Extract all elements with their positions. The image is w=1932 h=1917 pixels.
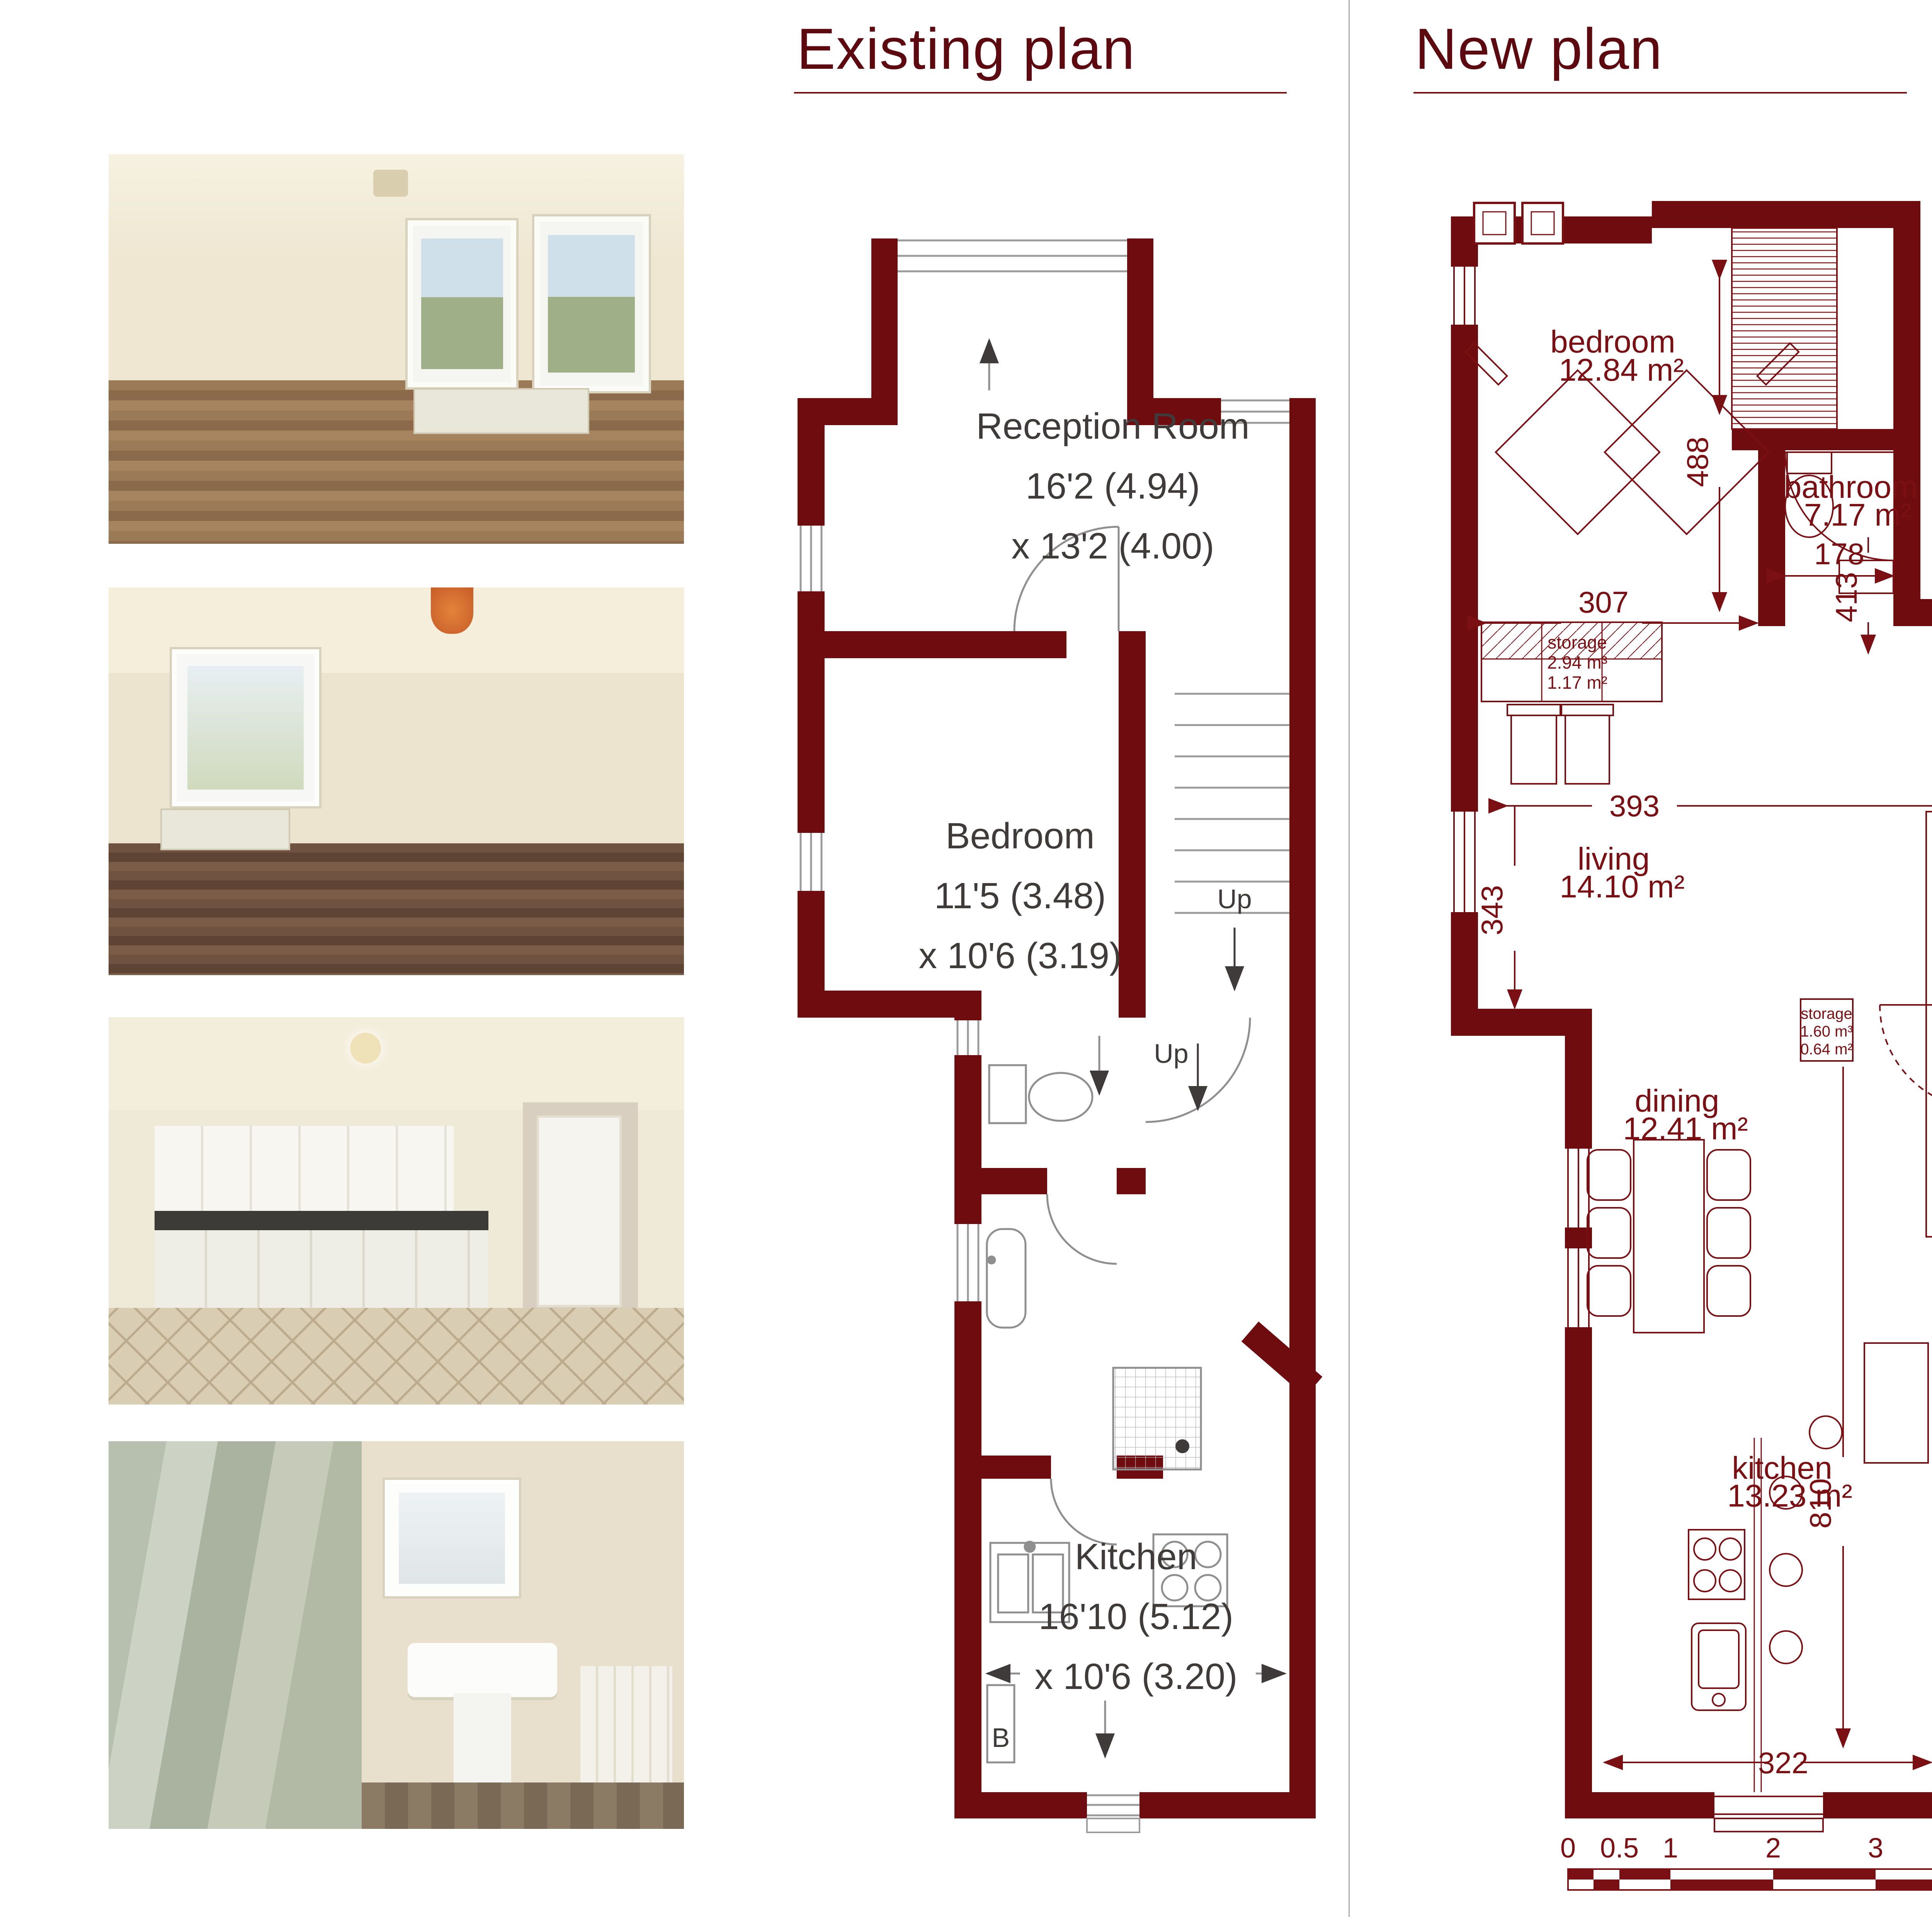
ceiling xyxy=(109,1017,684,1110)
dim-413: 413 xyxy=(1829,572,1863,622)
wall-cabinets xyxy=(155,1126,454,1211)
frosted-window xyxy=(385,1480,519,1596)
bedroom-chairs-new xyxy=(1507,705,1613,784)
bedroom-dim2: x 10'6 (3.19) xyxy=(918,935,1121,976)
hallway-opening xyxy=(523,1102,638,1315)
dim-343: 343 xyxy=(1475,885,1509,935)
dim-393: 393 xyxy=(1609,789,1660,823)
frosted-pane xyxy=(399,1493,505,1584)
existing-title-underline xyxy=(794,92,1287,94)
toilet-existing xyxy=(989,1065,1092,1123)
new-floor-plan: bedroom 12.84 m² bathroom 7.17 m² living… xyxy=(1410,174,1932,1898)
pendant-shade xyxy=(431,587,473,634)
radiator xyxy=(413,388,589,434)
radiator xyxy=(160,809,290,850)
bedroom-label: Bedroom xyxy=(946,815,1094,856)
sash-window xyxy=(534,216,649,391)
dim-322: 322 xyxy=(1758,1746,1808,1780)
scale-label-2: 2 xyxy=(1765,1833,1781,1864)
existing-floor-plan: Reception Room 16'2 (4.94) x 13'2 (4.00)… xyxy=(773,174,1352,1898)
storage2-area: 0.64 m² xyxy=(1800,1041,1853,1058)
storage2-volume: 1.60 m³ xyxy=(1800,1023,1853,1040)
new-living-area: 14.10 m² xyxy=(1560,869,1685,904)
dim-307: 307 xyxy=(1578,585,1629,619)
basin-pedestal xyxy=(454,1693,511,1794)
new-dining-area: 12.41 m² xyxy=(1623,1111,1748,1146)
window-view xyxy=(548,235,635,373)
new-title-underline xyxy=(1413,92,1907,94)
existing-plan-title: Existing plan xyxy=(797,15,1136,82)
dim-178: 178 xyxy=(1814,537,1864,571)
shower-existing xyxy=(1113,1368,1201,1469)
scale-bar: 0 0.5 1 2 3 4 5 xyxy=(1560,1833,1932,1890)
photo-existing-kitchen xyxy=(109,1017,684,1405)
stair-hatch-strip xyxy=(1732,228,1837,429)
scale-label-0: 0 xyxy=(1560,1833,1576,1864)
living-counter-new xyxy=(1926,812,1932,1237)
dark-floorboards xyxy=(109,843,684,975)
reception-room-dim2: x 13'2 (4.00) xyxy=(1011,526,1214,567)
scale-bar-cells xyxy=(1568,1869,1932,1890)
basin-existing xyxy=(987,1229,1026,1328)
kitchen-label: Kitchen xyxy=(1075,1536,1197,1577)
bedroom-dim1: 11'5 (3.48) xyxy=(934,875,1106,916)
ceiling-lamp xyxy=(350,1033,381,1064)
scale-label-1: 1 xyxy=(1663,1833,1678,1864)
scale-label-05: 0.5 xyxy=(1600,1833,1639,1864)
window xyxy=(172,649,319,806)
boiler-label: B xyxy=(992,1723,1010,1753)
scale-label-3: 3 xyxy=(1868,1833,1883,1864)
storage1-label: storage xyxy=(1548,632,1607,652)
new-bathroom-area: 7.17 m² xyxy=(1804,497,1912,533)
window-view xyxy=(421,238,503,369)
new-plan-title: New plan xyxy=(1415,15,1663,82)
reception-room-dim1: 16'2 (4.94) xyxy=(1026,466,1200,507)
dim-810: 810 xyxy=(1803,1478,1837,1529)
floor-pattern xyxy=(109,1308,684,1405)
reception-room-label: Reception Room xyxy=(976,406,1250,447)
up-label-2: Up xyxy=(1154,1039,1188,1069)
sash-window xyxy=(408,220,516,387)
bare-floorboards xyxy=(109,380,684,544)
storage2-label: storage xyxy=(1801,1005,1852,1022)
dark-worktop xyxy=(155,1211,488,1230)
floor xyxy=(362,1783,684,1829)
ceiling-rose xyxy=(373,170,408,197)
storage1-area: 1.17 m² xyxy=(1547,672,1607,693)
photo-existing-reception xyxy=(109,154,684,544)
kitchen-island-new xyxy=(1689,1343,1928,1792)
dim-488: 488 xyxy=(1680,437,1714,487)
mottled-wall xyxy=(109,1441,362,1829)
photo-existing-bedroom xyxy=(109,587,684,975)
white-door xyxy=(537,1115,622,1308)
new-bedroom-area: 12.84 m² xyxy=(1559,352,1684,388)
vinyl-floor xyxy=(109,1308,684,1405)
presentation-board: Existing plan New plan xyxy=(0,0,1932,1917)
storage1-volume: 2.94 m³ xyxy=(1547,652,1607,672)
dining-set-new xyxy=(1587,1140,1750,1333)
panel-radiator xyxy=(580,1666,672,1798)
window-view xyxy=(187,666,303,790)
photo-existing-bathroom xyxy=(109,1441,684,1829)
basin-bowl xyxy=(408,1643,557,1697)
kitchen-dim2: x 10'6 (3.20) xyxy=(1034,1656,1237,1697)
base-cabinets xyxy=(155,1230,488,1308)
kitchen-dim1: 16'10 (5.12) xyxy=(1039,1596,1233,1637)
up-label-1: Up xyxy=(1217,884,1252,914)
